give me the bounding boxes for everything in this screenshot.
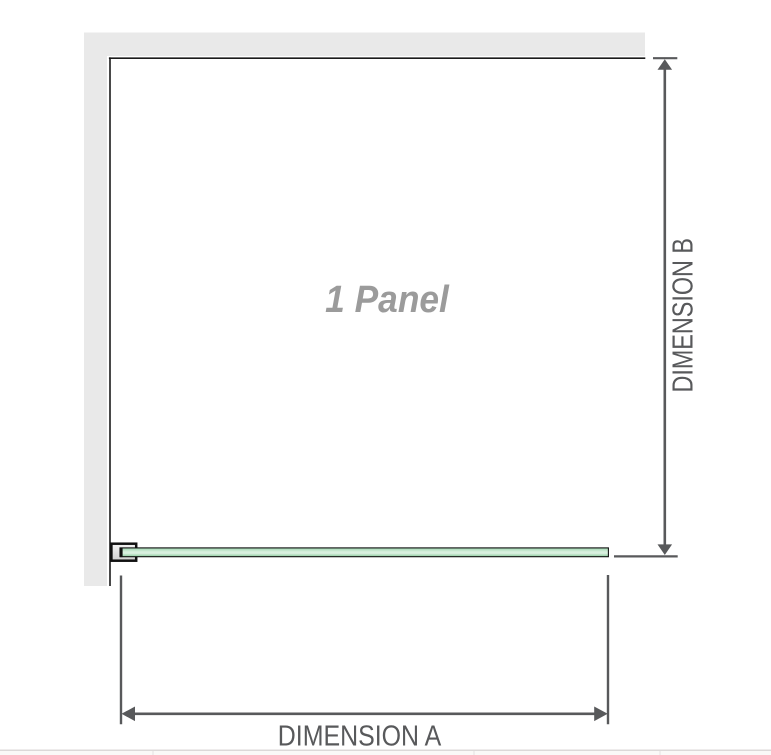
svg-text:DIMENSION B: DIMENSION B xyxy=(666,238,699,392)
svg-text:1 Panel: 1 Panel xyxy=(325,278,450,320)
svg-text:DIMENSION A: DIMENSION A xyxy=(278,720,441,752)
